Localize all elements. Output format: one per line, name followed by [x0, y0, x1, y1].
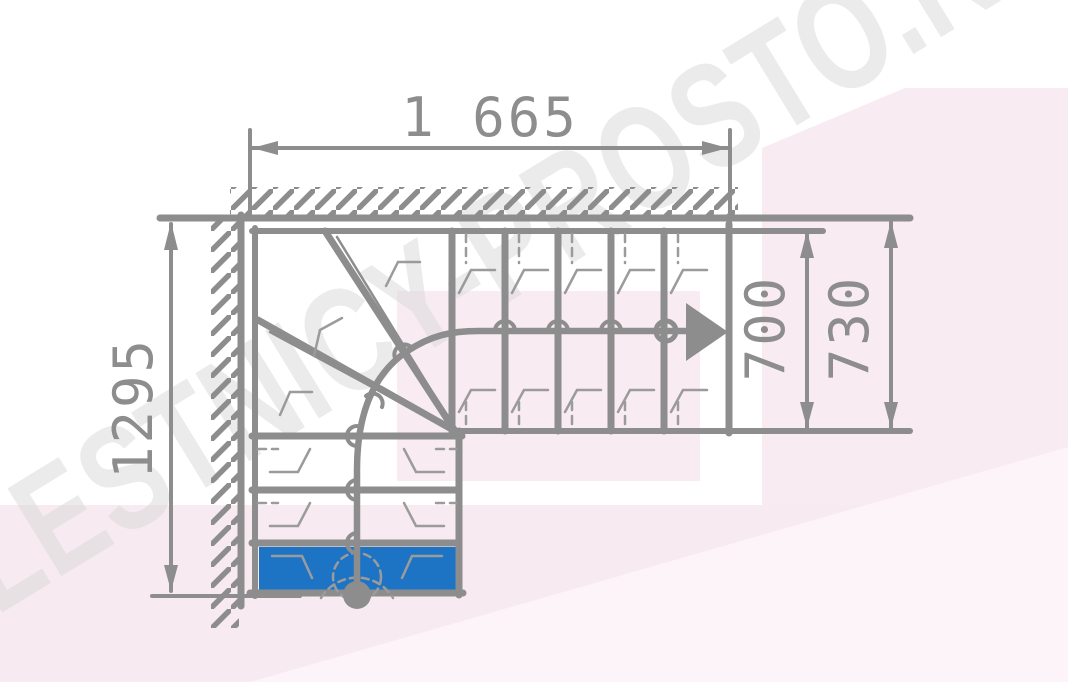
dim-label-left-height: 1295 [102, 337, 165, 479]
dim-label-top-width: 1 665 [401, 86, 579, 149]
plan-svg: 1 665 1295 700 730 [0, 0, 1068, 682]
tread-hooks-lower [459, 390, 707, 412]
left-wall-hatching [211, 216, 239, 628]
arrow-left-icon [252, 141, 278, 155]
arrow-down-icon [164, 565, 178, 591]
arrow-up-icon [164, 222, 178, 250]
stair-plan-drawing: LESTNICY-PROSTO.RU [0, 0, 1068, 682]
winder-fan-lines [258, 231, 455, 431]
arrow-down-icon [800, 402, 814, 428]
winder-riser-line [325, 231, 455, 431]
dim-label-inner-width: 700 [734, 275, 797, 382]
arrow-up-icon [800, 231, 814, 258]
tread-hooks-upper [459, 270, 707, 293]
arrow-right-icon [702, 141, 728, 155]
direction-arrow-icon [686, 303, 728, 361]
top-wall-hatching [230, 187, 738, 215]
winder-companion-lines [270, 237, 450, 428]
winder-riser-line [258, 320, 455, 431]
dim-label-outer-width: 730 [818, 275, 881, 382]
walk-start-dot [343, 581, 371, 609]
arrow-up-icon [884, 221, 898, 248]
arrow-down-icon [884, 402, 898, 428]
